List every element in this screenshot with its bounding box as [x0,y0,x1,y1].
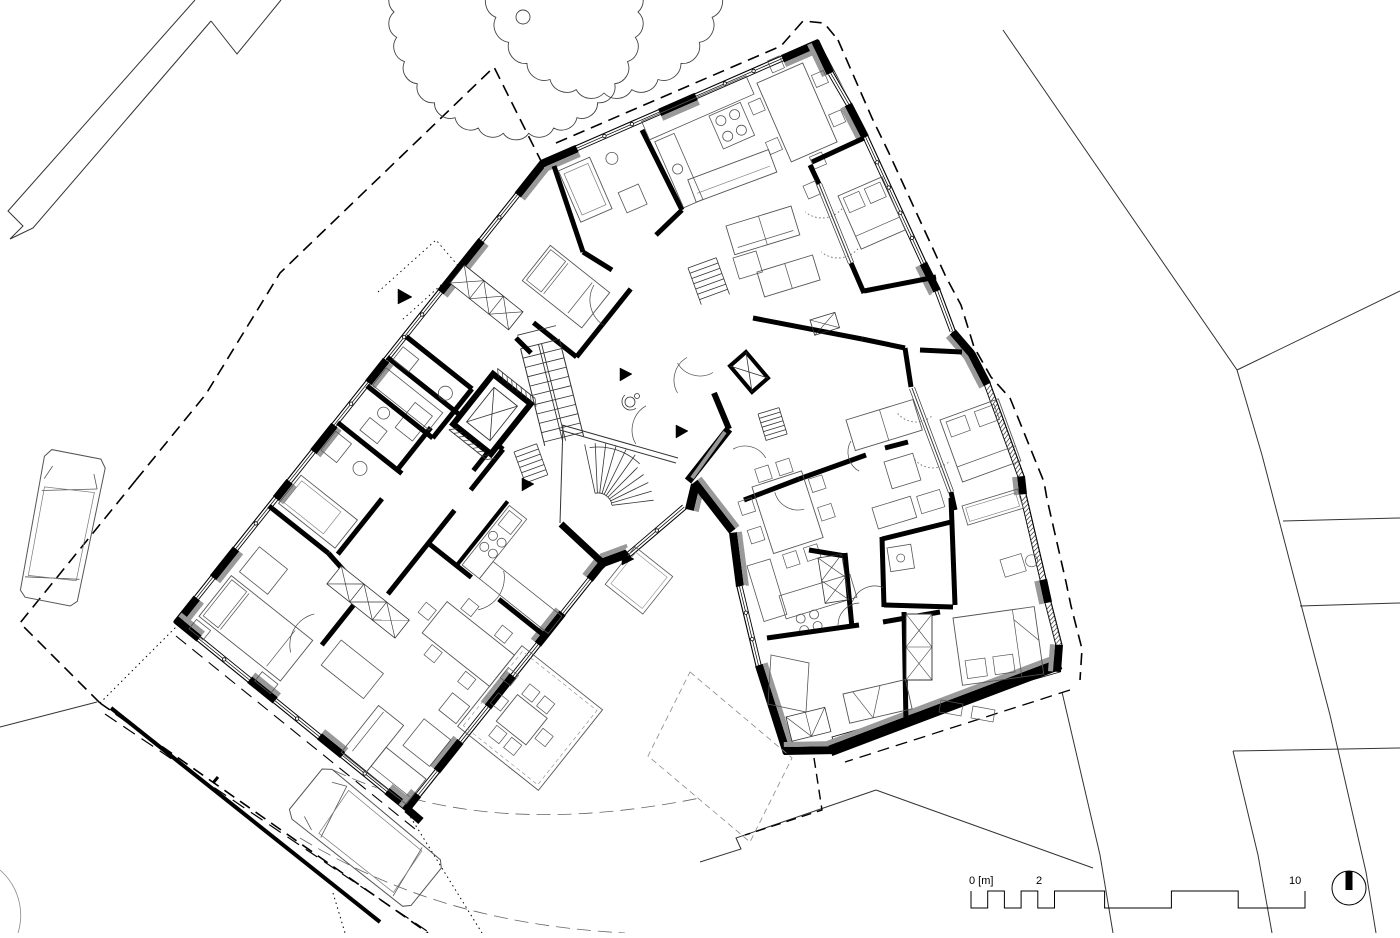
svg-text:0 [m]: 0 [m] [969,875,993,887]
svg-text:10: 10 [1289,875,1301,887]
svg-text:2: 2 [1036,875,1042,887]
